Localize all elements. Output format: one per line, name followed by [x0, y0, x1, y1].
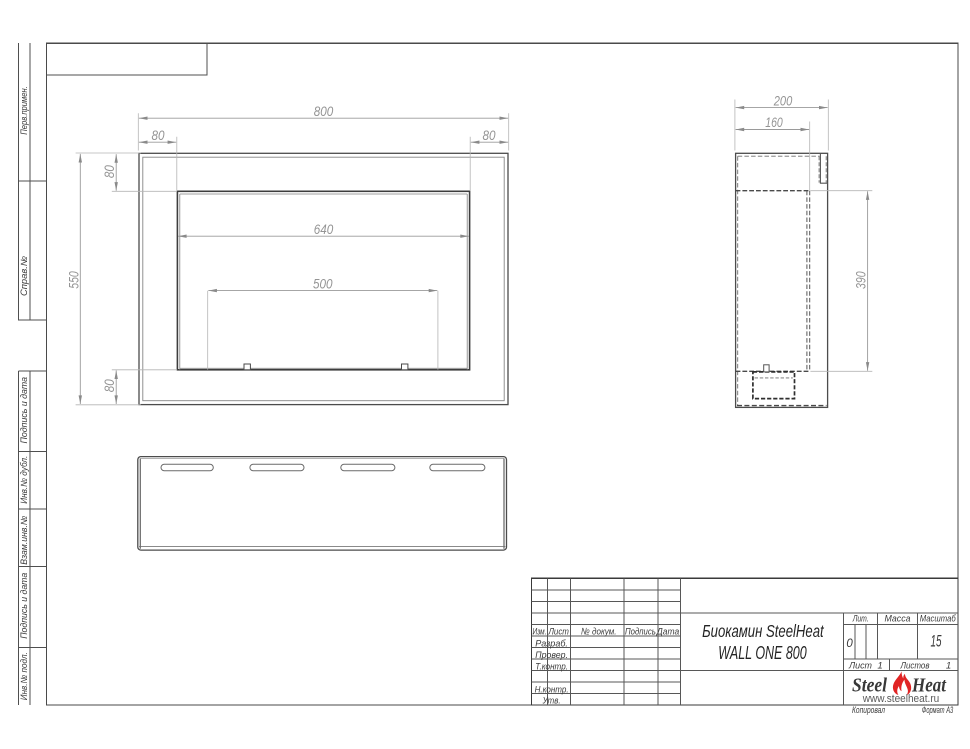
- svg-text:Утв.: Утв.: [542, 696, 561, 707]
- svg-text:Дата: Дата: [656, 626, 679, 637]
- svg-text:15: 15: [931, 632, 942, 651]
- svg-text:Провер.: Провер.: [535, 650, 568, 661]
- svg-text:80: 80: [101, 379, 117, 392]
- svg-text:Копировал: Копировал: [852, 705, 885, 715]
- svg-text:640: 640: [314, 221, 334, 237]
- svg-text:Формат А3: Формат А3: [922, 705, 954, 715]
- svg-text:Изм.: Изм.: [533, 626, 547, 637]
- svg-text:200: 200: [773, 92, 792, 108]
- svg-text:Подпись и дата: Подпись и дата: [19, 377, 29, 444]
- svg-text:Инв.№ дубл.: Инв.№ дубл.: [19, 456, 29, 504]
- svg-text:Биокамин SteelHeat: Биокамин SteelHeat: [702, 621, 824, 641]
- svg-text:Н.контр.: Н.контр.: [535, 684, 569, 695]
- svg-text:www.steelheat.ru: www.steelheat.ru: [862, 693, 939, 705]
- svg-text:1: 1: [877, 661, 882, 672]
- svg-text:80: 80: [152, 127, 165, 143]
- svg-text:WALL ONE 800: WALL ONE 800: [718, 642, 807, 663]
- svg-text:Масштаб: Масштаб: [920, 614, 956, 625]
- svg-text:1: 1: [946, 661, 951, 672]
- svg-text:Инв.№ подл.: Инв.№ подл.: [19, 652, 29, 700]
- svg-text:Разраб.: Разраб.: [535, 638, 568, 649]
- svg-text:Лист: Лист: [548, 626, 569, 637]
- svg-text:0: 0: [846, 638, 853, 650]
- svg-text:Перв.примен.: Перв.примен.: [19, 86, 29, 135]
- svg-text:390: 390: [853, 271, 869, 289]
- svg-text:80: 80: [101, 165, 117, 178]
- svg-text:Подпись и дата: Подпись и дата: [19, 573, 29, 639]
- svg-text:Масса: Масса: [885, 614, 911, 625]
- svg-text:550: 550: [65, 271, 81, 289]
- svg-text:Взам.инв.№: Взам.инв.№: [19, 515, 29, 564]
- svg-text:800: 800: [314, 103, 334, 119]
- svg-text:160: 160: [765, 114, 783, 130]
- svg-text:80: 80: [483, 127, 496, 143]
- svg-text:Лист: Лист: [848, 661, 872, 672]
- svg-text:Подпись: Подпись: [625, 626, 656, 637]
- svg-text:Листов: Листов: [900, 661, 930, 672]
- svg-text:№ докум.: № докум.: [581, 626, 617, 637]
- svg-text:Справ.№: Справ.№: [19, 256, 29, 296]
- svg-text:Т.контр.: Т.контр.: [535, 661, 568, 672]
- svg-text:Лит.: Лит.: [852, 614, 869, 625]
- svg-text:500: 500: [313, 275, 333, 291]
